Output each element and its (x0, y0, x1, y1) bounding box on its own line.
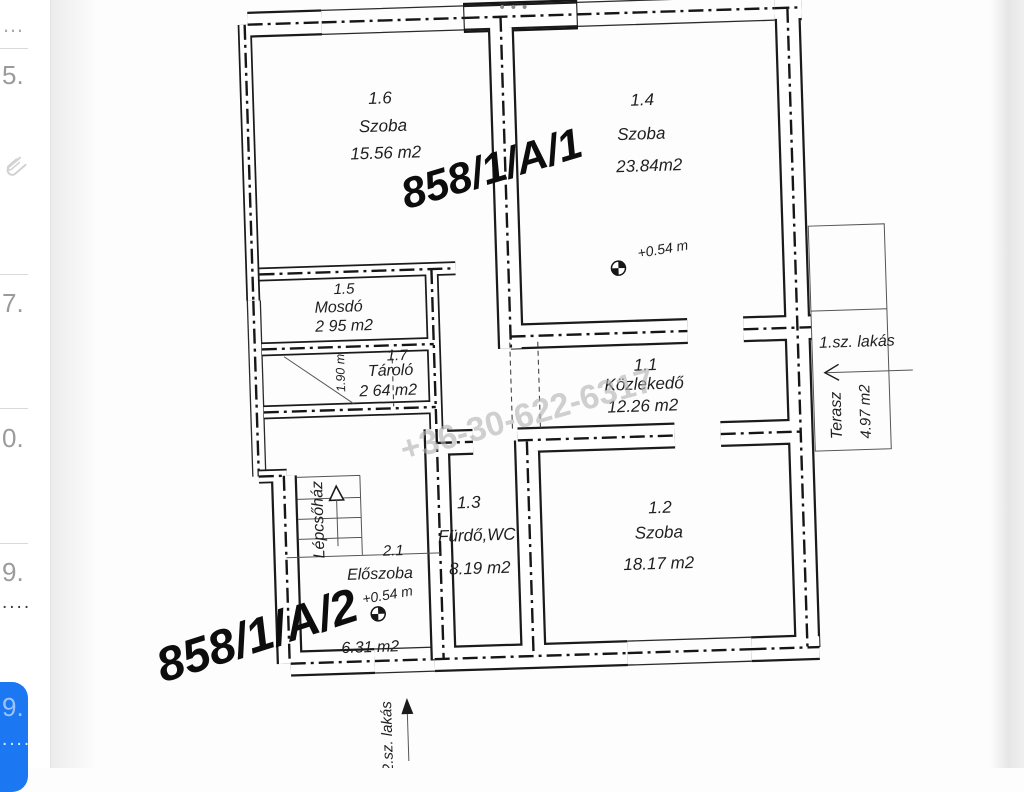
room-2-1-name: Előszoba (347, 565, 413, 584)
room-1-5-area: 2 95 m2 (314, 317, 373, 336)
paperclip-icon (2, 150, 28, 180)
room-1-6-area: 15.56 m2 (350, 142, 422, 163)
room-1-2-number: 1.2 (648, 498, 673, 518)
room-1-3-name: Fürdő,WC (438, 525, 517, 546)
room-1-7-width-dim: 1.90 m (333, 354, 348, 393)
list-sidebar: … 5. 7. 0. 9. .... (0, 0, 50, 768)
list-item-label: 9. (0, 682, 28, 723)
list-item[interactable]: 7. (0, 288, 50, 319)
list-item[interactable]: … (0, 12, 50, 38)
list-item-label: … (0, 12, 50, 38)
flat1-label: 1.sz. lakás (819, 333, 895, 352)
room-1-5-number: 1.5 (333, 280, 355, 298)
list-divider (0, 274, 28, 275)
room-1-7-name: Tároló (368, 362, 414, 380)
list-divider (0, 48, 28, 49)
more-menu-dots[interactable]: ••• (498, 0, 532, 16)
list-item-preview-dots: .... (0, 729, 28, 751)
room-1-2-name: Szoba (634, 522, 683, 543)
floorplan-drawing: 1.6 Szoba 15.56 m2 1.4 Szoba 23.84m2 +0.… (0, 0, 1024, 768)
list-item[interactable]: 5. (0, 60, 50, 91)
terrace-name: Terasz (827, 391, 845, 439)
elevation-marker-1-4 (611, 261, 625, 275)
stairwell (284, 473, 440, 558)
list-item-selected[interactable]: 9. .... (0, 682, 28, 792)
panel-edge-shadow (50, 0, 96, 768)
stair-direction-arrow (329, 486, 343, 500)
stairwell-label: Lépcsőház (309, 481, 328, 559)
room-1-5-name: Mosdó (314, 298, 363, 317)
list-item-label: 9. (0, 557, 50, 588)
room-1-2-area: 18.17 m2 (623, 553, 695, 574)
elevation-marker-2-1 (371, 607, 385, 621)
list-divider (0, 408, 28, 409)
room-2-1-elevation: +0.54 m (361, 582, 414, 607)
list-item-label: 5. (0, 60, 50, 91)
list-item[interactable]: 9. .... (0, 557, 50, 614)
walls (245, 7, 822, 664)
list-item-label: 0. (0, 423, 50, 454)
terrace-area: 4.97 m2 (856, 383, 875, 438)
flat2-label: 2.sz. lakás (378, 700, 397, 768)
list-divider (0, 543, 28, 544)
room-1-3-number: 1.3 (457, 493, 482, 513)
room-2-1-number: 2.1 (382, 542, 404, 560)
room-1-6-name: Szoba (359, 116, 408, 137)
flat2-arrow (401, 698, 415, 761)
parcel-id-unit2: 858/1/A/2 (150, 579, 365, 693)
room-2-1-area: 6.31 m2 (341, 638, 399, 657)
room-1-6-number: 1.6 (368, 88, 393, 108)
room-1-4-number: 1.4 (630, 90, 654, 110)
list-item-preview-dots: .... (0, 592, 50, 614)
room-1-3-area: 8.19 m2 (449, 558, 512, 579)
list-item-label: 7. (0, 288, 50, 319)
list-item[interactable]: 0. (0, 423, 50, 454)
room-1-4-name: Szoba (617, 124, 666, 145)
room-1-4-elevation: +0.54 m (636, 237, 689, 262)
room-1-4-area: 23.84m2 (615, 155, 683, 176)
room-1-7-area: 2 64 m2 (358, 382, 417, 401)
